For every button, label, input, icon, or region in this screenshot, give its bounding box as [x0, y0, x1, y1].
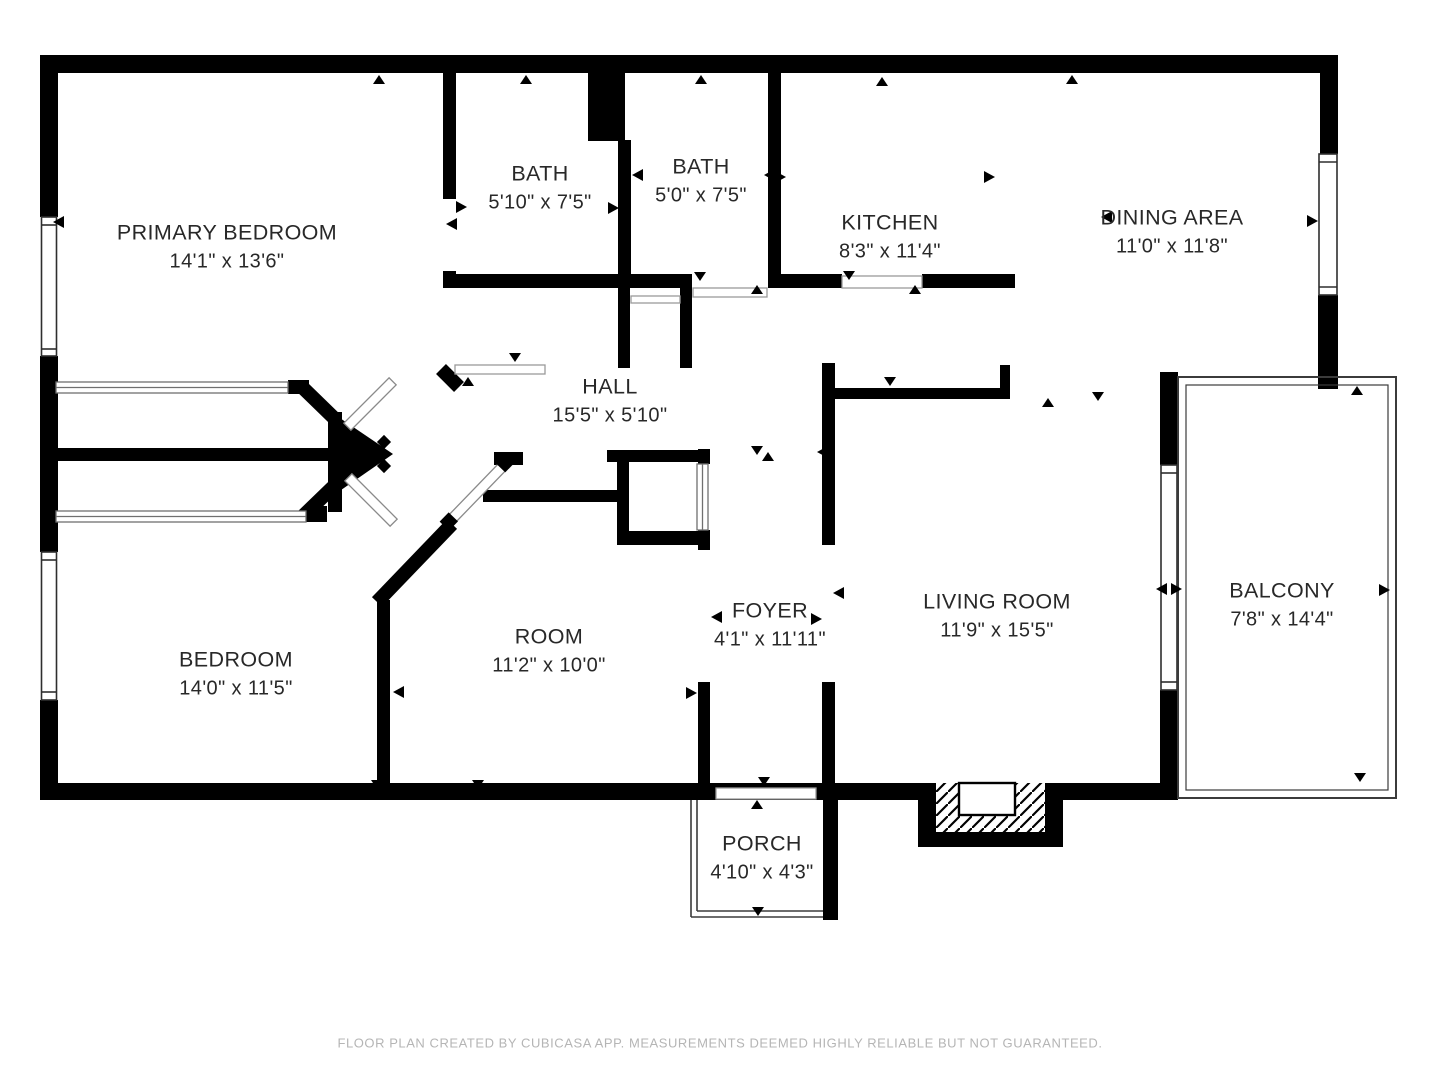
room-name: PRIMARY BEDROOM: [117, 221, 337, 246]
room-label-bath-2: BATH 5'0" x 7'5": [655, 155, 747, 208]
fireplace: [918, 783, 1063, 847]
room-dimensions: 15'5" x 5'10": [553, 405, 668, 428]
room-dimensions: 11'9" x 15'5": [923, 620, 1071, 643]
window-balcony-slider: [1161, 465, 1177, 690]
room-name: HALL: [553, 375, 668, 400]
room-label-dining-area: DINING AREA 11'0" x 11'8": [1101, 206, 1244, 259]
chimney-block: [588, 73, 625, 141]
room-label-hall: HALL 15'5" x 5'10": [553, 375, 668, 428]
room-name: ROOM: [492, 625, 605, 650]
room-dimensions: 5'0" x 7'5": [655, 185, 747, 208]
window-bedroom: [42, 552, 57, 700]
window-dining: [1319, 154, 1337, 295]
room-label-primary-bedroom: PRIMARY BEDROOM 14'1" x 13'6": [117, 221, 337, 274]
window-primary-bedroom: [42, 217, 57, 356]
room-dimensions: 7'8" x 14'4": [1229, 609, 1335, 632]
room-name: BALCONY: [1229, 579, 1335, 604]
room-name: BATH: [655, 155, 747, 180]
floor-plan-page: PRIMARY BEDROOM 14'1" x 13'6" BATH 5'10"…: [0, 0, 1440, 1080]
room-name: PORCH: [710, 832, 813, 857]
room-name: BEDROOM: [179, 648, 293, 673]
room-dimensions: 11'2" x 10'0": [492, 655, 605, 678]
room-label-bedroom: BEDROOM 14'0" x 11'5": [179, 648, 293, 701]
room-name: FOYER: [714, 599, 826, 624]
porch-right-wall: [823, 790, 838, 920]
room-dimensions: 14'1" x 13'6": [117, 251, 337, 274]
room-dimensions: 4'1" x 11'11": [714, 629, 826, 652]
room-label-kitchen: KITCHEN 8'3" x 11'4": [839, 211, 941, 264]
room-label-bath-1: BATH 5'10" x 7'5": [488, 162, 591, 215]
room-dimensions: 8'3" x 11'4": [839, 241, 941, 264]
room-name: KITCHEN: [839, 211, 941, 236]
room-label-porch: PORCH 4'10" x 4'3": [710, 832, 813, 885]
room-name: DINING AREA: [1101, 206, 1244, 231]
room-dimensions: 5'10" x 7'5": [488, 192, 591, 215]
footer-disclaimer: FLOOR PLAN CREATED BY CUBICASA APP. MEAS…: [338, 1036, 1103, 1051]
room-name: BATH: [488, 162, 591, 187]
room-dimensions: 11'0" x 11'8": [1101, 236, 1244, 259]
firebox: [959, 783, 1015, 815]
room-dimensions: 14'0" x 11'5": [179, 678, 293, 701]
room-label-balcony: BALCONY 7'8" x 14'4": [1229, 579, 1335, 632]
diagonal-walls: [300, 369, 459, 602]
room-label-room: ROOM 11'2" x 10'0": [492, 625, 605, 678]
room-dimensions: 4'10" x 4'3": [710, 862, 813, 885]
room-name: LIVING ROOM: [923, 590, 1071, 615]
room-label-foyer: FOYER 4'1" x 11'11": [714, 599, 826, 652]
room-label-living-room: LIVING ROOM 11'9" x 15'5": [923, 590, 1071, 643]
